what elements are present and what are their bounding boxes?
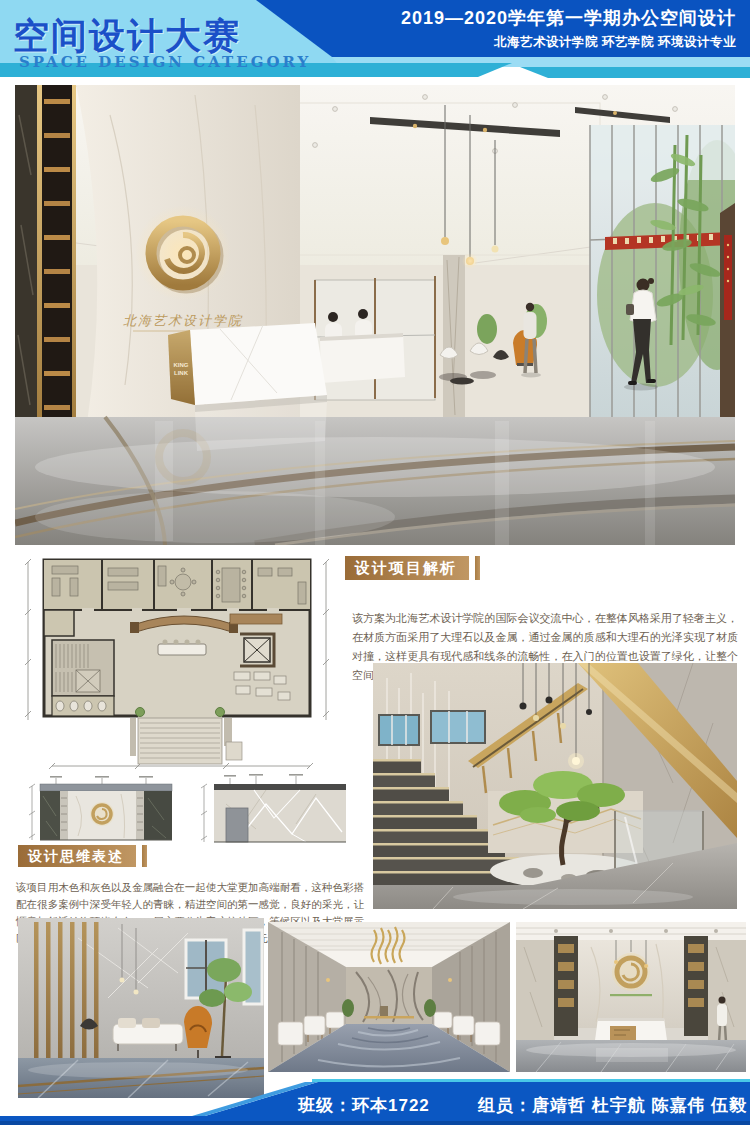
- lobby-render-image: 北海艺术设计学院: [15, 85, 735, 545]
- plan-elevator: [240, 634, 274, 666]
- plant-left: [342, 999, 354, 1017]
- footer-banner: 班级：环本1722 组员：唐靖哲 杜宇航 陈嘉伟 伍毅: [0, 1072, 750, 1125]
- team-members-label: 组员：唐靖哲 杜宇航 陈嘉伟 伍毅: [478, 1094, 747, 1117]
- analysis-section-title: 设计项目解析: [345, 556, 480, 580]
- elevation-b-image: [196, 774, 352, 852]
- poster-subtitle: SPACE DESIGN CATEGORY: [19, 53, 311, 71]
- thinking-section-title: 设计思维表述: [18, 845, 147, 867]
- desk-sign-line2: LINK: [174, 370, 189, 376]
- school-info: 北海艺术设计学院 环艺学院 环境设计专业: [401, 34, 736, 51]
- class-label: 班级：环本1722: [298, 1094, 430, 1117]
- header-banner: 空间设计大赛 SPACE DESIGN CATEGORY 2019—2020学年…: [0, 0, 750, 80]
- title-accent-bar-2: [142, 845, 147, 867]
- main-lobby-render: 北海艺术设计学院: [15, 85, 735, 545]
- header-course-info: 2019—2020学年第一学期办公空间设计 北海艺术设计学院 环艺学院 环境设计…: [401, 6, 736, 51]
- meeting-room-image: [268, 922, 510, 1072]
- vertical-red-sign: [724, 235, 732, 320]
- design-poster: 空间设计大赛 SPACE DESIGN CATEGORY 2019—2020学年…: [0, 0, 750, 1125]
- thinking-title-label: 设计思维表述: [18, 845, 136, 867]
- floor-plan-drawing: [12, 552, 342, 772]
- staircase-render-image: [373, 663, 737, 909]
- desk-sign-line1: KING: [174, 362, 189, 368]
- reception-render: [516, 922, 746, 1072]
- floor-plan-image: [12, 552, 342, 772]
- plan-stairs: [52, 640, 114, 696]
- secondary-desk: [320, 333, 405, 383]
- elevation-a-image: [26, 776, 178, 850]
- reception-floor: [516, 1040, 746, 1072]
- lounge-render: [18, 918, 264, 1098]
- plant-right: [424, 999, 436, 1017]
- elevation-drawing-polygon-wall: [196, 774, 352, 852]
- elevation-drawing-logo-wall: [26, 776, 178, 850]
- reception-logo-wall: [578, 940, 684, 1028]
- analysis-title-label: 设计项目解析: [345, 556, 469, 580]
- marble-floor: [15, 402, 735, 545]
- logo-calligraphy: 北海艺术设计学院: [123, 313, 243, 328]
- marble-feature-wall: [346, 967, 432, 1024]
- staircase-render: [373, 663, 737, 909]
- title-accent-bar: [475, 556, 480, 580]
- plan-washroom: [52, 696, 114, 716]
- reception-render-image: [516, 922, 746, 1072]
- main-reception-desk: KING LINK: [168, 323, 327, 412]
- course-title: 2019—2020学年第一学期办公空间设计: [401, 6, 736, 30]
- left-shelving: [15, 85, 76, 437]
- meeting-room-render: [268, 922, 510, 1072]
- lounge-render-image: [18, 918, 264, 1098]
- stair-windows: [379, 711, 485, 745]
